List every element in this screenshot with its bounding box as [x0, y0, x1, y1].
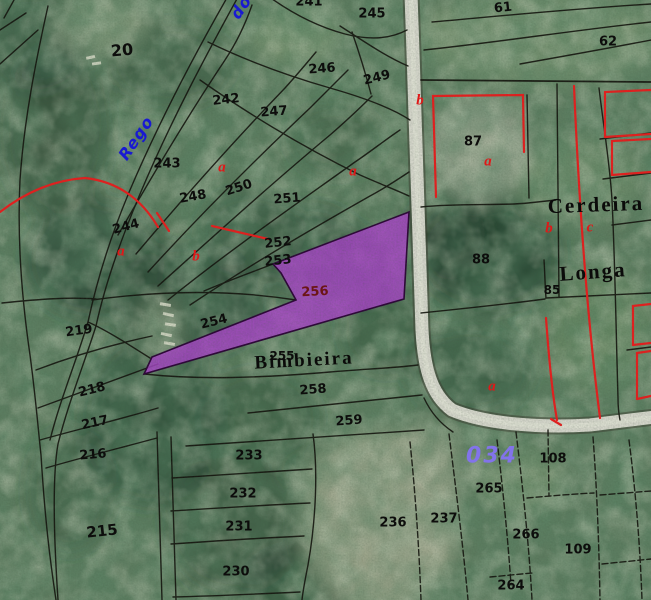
parcel-number-label: 244	[111, 216, 141, 238]
parcel-number-label: 219	[65, 322, 94, 341]
parcel-number-label: 217	[80, 413, 110, 433]
parcel-number-label: 266	[512, 528, 539, 543]
parcel-number-label: 62	[599, 35, 617, 50]
zone-letter-label: a	[484, 154, 492, 171]
zone-letter-label: b	[192, 249, 200, 266]
parcel-number-label: 109	[564, 543, 591, 558]
place-name-label: Bimbieira	[254, 347, 354, 374]
parcel-number-label: 237	[430, 512, 457, 527]
parcel-number-label: 61	[493, 0, 513, 16]
parcel-number-label: 246	[308, 61, 336, 78]
parcel-number-label: 264	[497, 579, 524, 594]
parcel-number-label: 230	[222, 565, 249, 580]
parcel-number-label: 259	[335, 413, 363, 430]
parcel-number-label: 242	[212, 91, 241, 109]
parcel-number-label: 231	[225, 520, 252, 535]
parcel-number-label: 87	[464, 135, 482, 150]
parcel-number-label: 215	[85, 520, 118, 541]
zone-letter-label: a	[488, 379, 496, 396]
parcel-number-label: 243	[153, 157, 180, 172]
parcel-number-label: 253	[264, 252, 293, 270]
zone-letter-label: a	[349, 164, 357, 181]
parcel-number-label: 233	[235, 449, 262, 464]
zone-letter-label: a	[218, 160, 226, 177]
stream-name-label: do	[226, 0, 255, 22]
parcel-number-label: 20	[110, 40, 134, 61]
map-sheet-number: 034	[466, 444, 518, 469]
parcel-number-label: 247	[260, 104, 288, 121]
parcel-number-label: 249	[362, 67, 392, 88]
parcel-number-label: 236	[379, 516, 406, 531]
map-label-layer: 2024124524624924224724324825025124425225…	[0, 0, 651, 600]
stream-name-label: Rego	[114, 112, 157, 163]
parcel-number-label: 85	[544, 283, 561, 297]
cadastral-map-viewport[interactable]: 2024124524624924224724324825025124425225…	[0, 0, 651, 600]
place-name-label: Cerdeira	[547, 191, 644, 219]
parcel-number-label: 108	[539, 452, 566, 467]
zone-letter-label: b	[416, 93, 424, 110]
parcel-number-label: 88	[472, 253, 490, 268]
zone-letter-label: c	[587, 220, 594, 237]
parcel-number-label: 254	[199, 311, 229, 332]
place-name-label: Longa	[559, 257, 628, 287]
parcel-number-label: 252	[264, 234, 293, 252]
parcel-number-label: 241	[295, 0, 322, 10]
parcel-number-label: 232	[229, 487, 256, 502]
parcel-number-label: 248	[178, 187, 207, 206]
parcel-number-label: 245	[358, 7, 385, 22]
selected-parcel-number: 256	[301, 284, 329, 300]
parcel-number-label: 218	[77, 379, 107, 400]
parcel-number-label: 216	[79, 446, 107, 463]
zone-letter-label: a	[117, 244, 125, 261]
parcel-number-label: 250	[224, 177, 254, 200]
zone-letter-label: b	[545, 221, 553, 238]
parcel-number-label: 265	[475, 482, 502, 497]
parcel-number-label: 258	[299, 382, 327, 399]
parcel-number-label: 251	[273, 191, 301, 208]
